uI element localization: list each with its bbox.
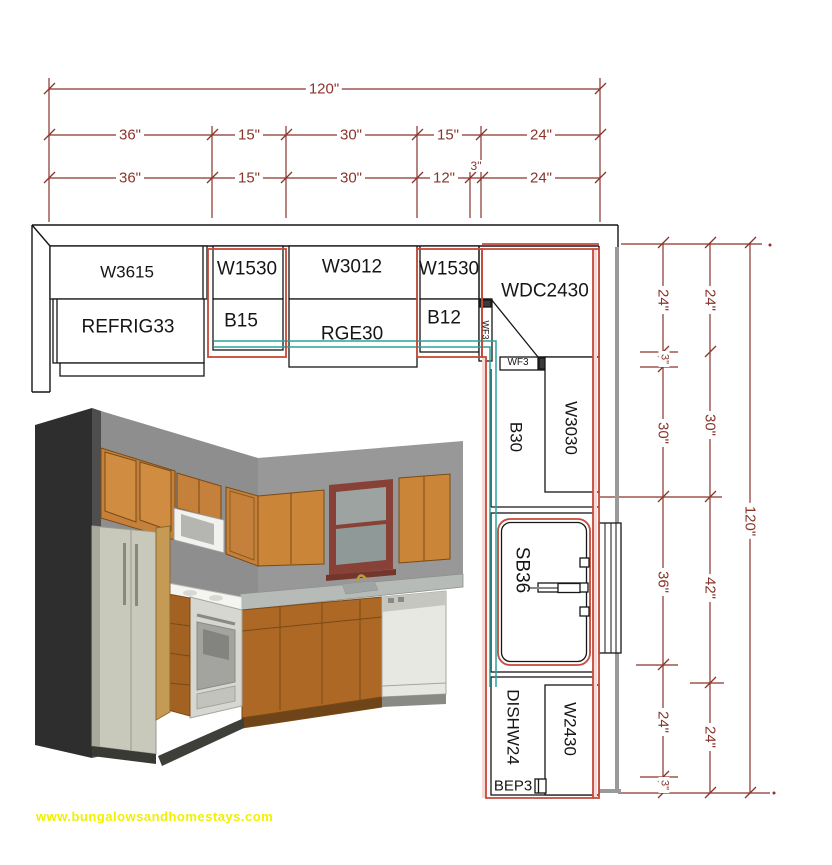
dim-top-row3-4: 3": [468, 160, 485, 172]
dim-right-inner-3: 36": [656, 568, 671, 596]
dim-top-row3-2: 30": [337, 171, 365, 186]
dim-top-row2-3: 15": [434, 128, 462, 143]
kitchen-layout-diagram: W3615 W1530 W3012 W1530 WDC2430 REFRIG33…: [0, 0, 832, 865]
dim-right-middle-3: 24": [703, 723, 718, 751]
cabinet-label-b15: B15: [224, 312, 258, 331]
dim-top-row2-1: 15": [235, 128, 263, 143]
dim-right-middle-0: 24": [703, 286, 718, 314]
render-dishwasher: [382, 591, 446, 707]
cabinet-label-w1530-right: W1530: [419, 260, 479, 279]
filler-label-wf3-vertical: WF3: [481, 321, 490, 340]
cabinet-label-dishw24: DISHW24: [505, 689, 522, 765]
render-window: [326, 479, 396, 581]
cabinet-label-sb36: SB36: [513, 547, 532, 593]
cabinet-label-w3012: W3012: [322, 258, 382, 277]
dim-right-middle-1: 30": [703, 411, 718, 439]
cabinet-label-wdc2430: WDC2430: [501, 282, 589, 301]
dim-top-row3-3: 12": [430, 171, 458, 186]
dim-top-row3-1: 15": [235, 171, 263, 186]
dim-top-row3-5: 24": [527, 171, 555, 186]
dim-right-inner-2: 30": [656, 419, 671, 447]
cabinet-label-b30: B30: [508, 422, 525, 452]
dim-top-overall: 120": [306, 82, 342, 97]
cabinet-label-refrig33: REFRIG33: [82, 318, 175, 337]
dim-top-row3-0: 36": [116, 171, 144, 186]
dim-top-row2-0: 36": [116, 128, 144, 143]
dim-right-inner-5: 3": [659, 777, 670, 793]
render-dark-wall-panel: [35, 408, 92, 758]
dim-right-inner-0: 24": [656, 286, 671, 314]
cabinet-label-bep3: BEP3: [494, 779, 532, 794]
render-base-cabinets: [242, 597, 382, 728]
watermark-url: www.bungalowsandhomestays.com: [36, 809, 273, 824]
dim-right-inner-1: 3": [659, 351, 670, 367]
dim-top-row2-2: 30": [337, 128, 365, 143]
filler-label-wf3-horizontal: WF3: [507, 358, 528, 368]
cabinet-label-w3615: W3615: [100, 264, 154, 281]
cabinet-label-b12: B12: [427, 309, 461, 328]
dim-right-middle-2: 42": [703, 574, 718, 602]
dim-right-inner-4: 24": [656, 708, 671, 736]
dim-top-row2-4: 24": [527, 128, 555, 143]
cabinet-label-w2430: W2430: [562, 702, 579, 756]
cabinet-label-w3030: W3030: [563, 401, 580, 455]
cabinet-label-rge30: RGE30: [321, 325, 383, 344]
render-drawer-stack: [168, 594, 190, 716]
cabinet-label-w1530-left: W1530: [217, 260, 277, 279]
dim-right-overall: 120": [743, 503, 758, 539]
